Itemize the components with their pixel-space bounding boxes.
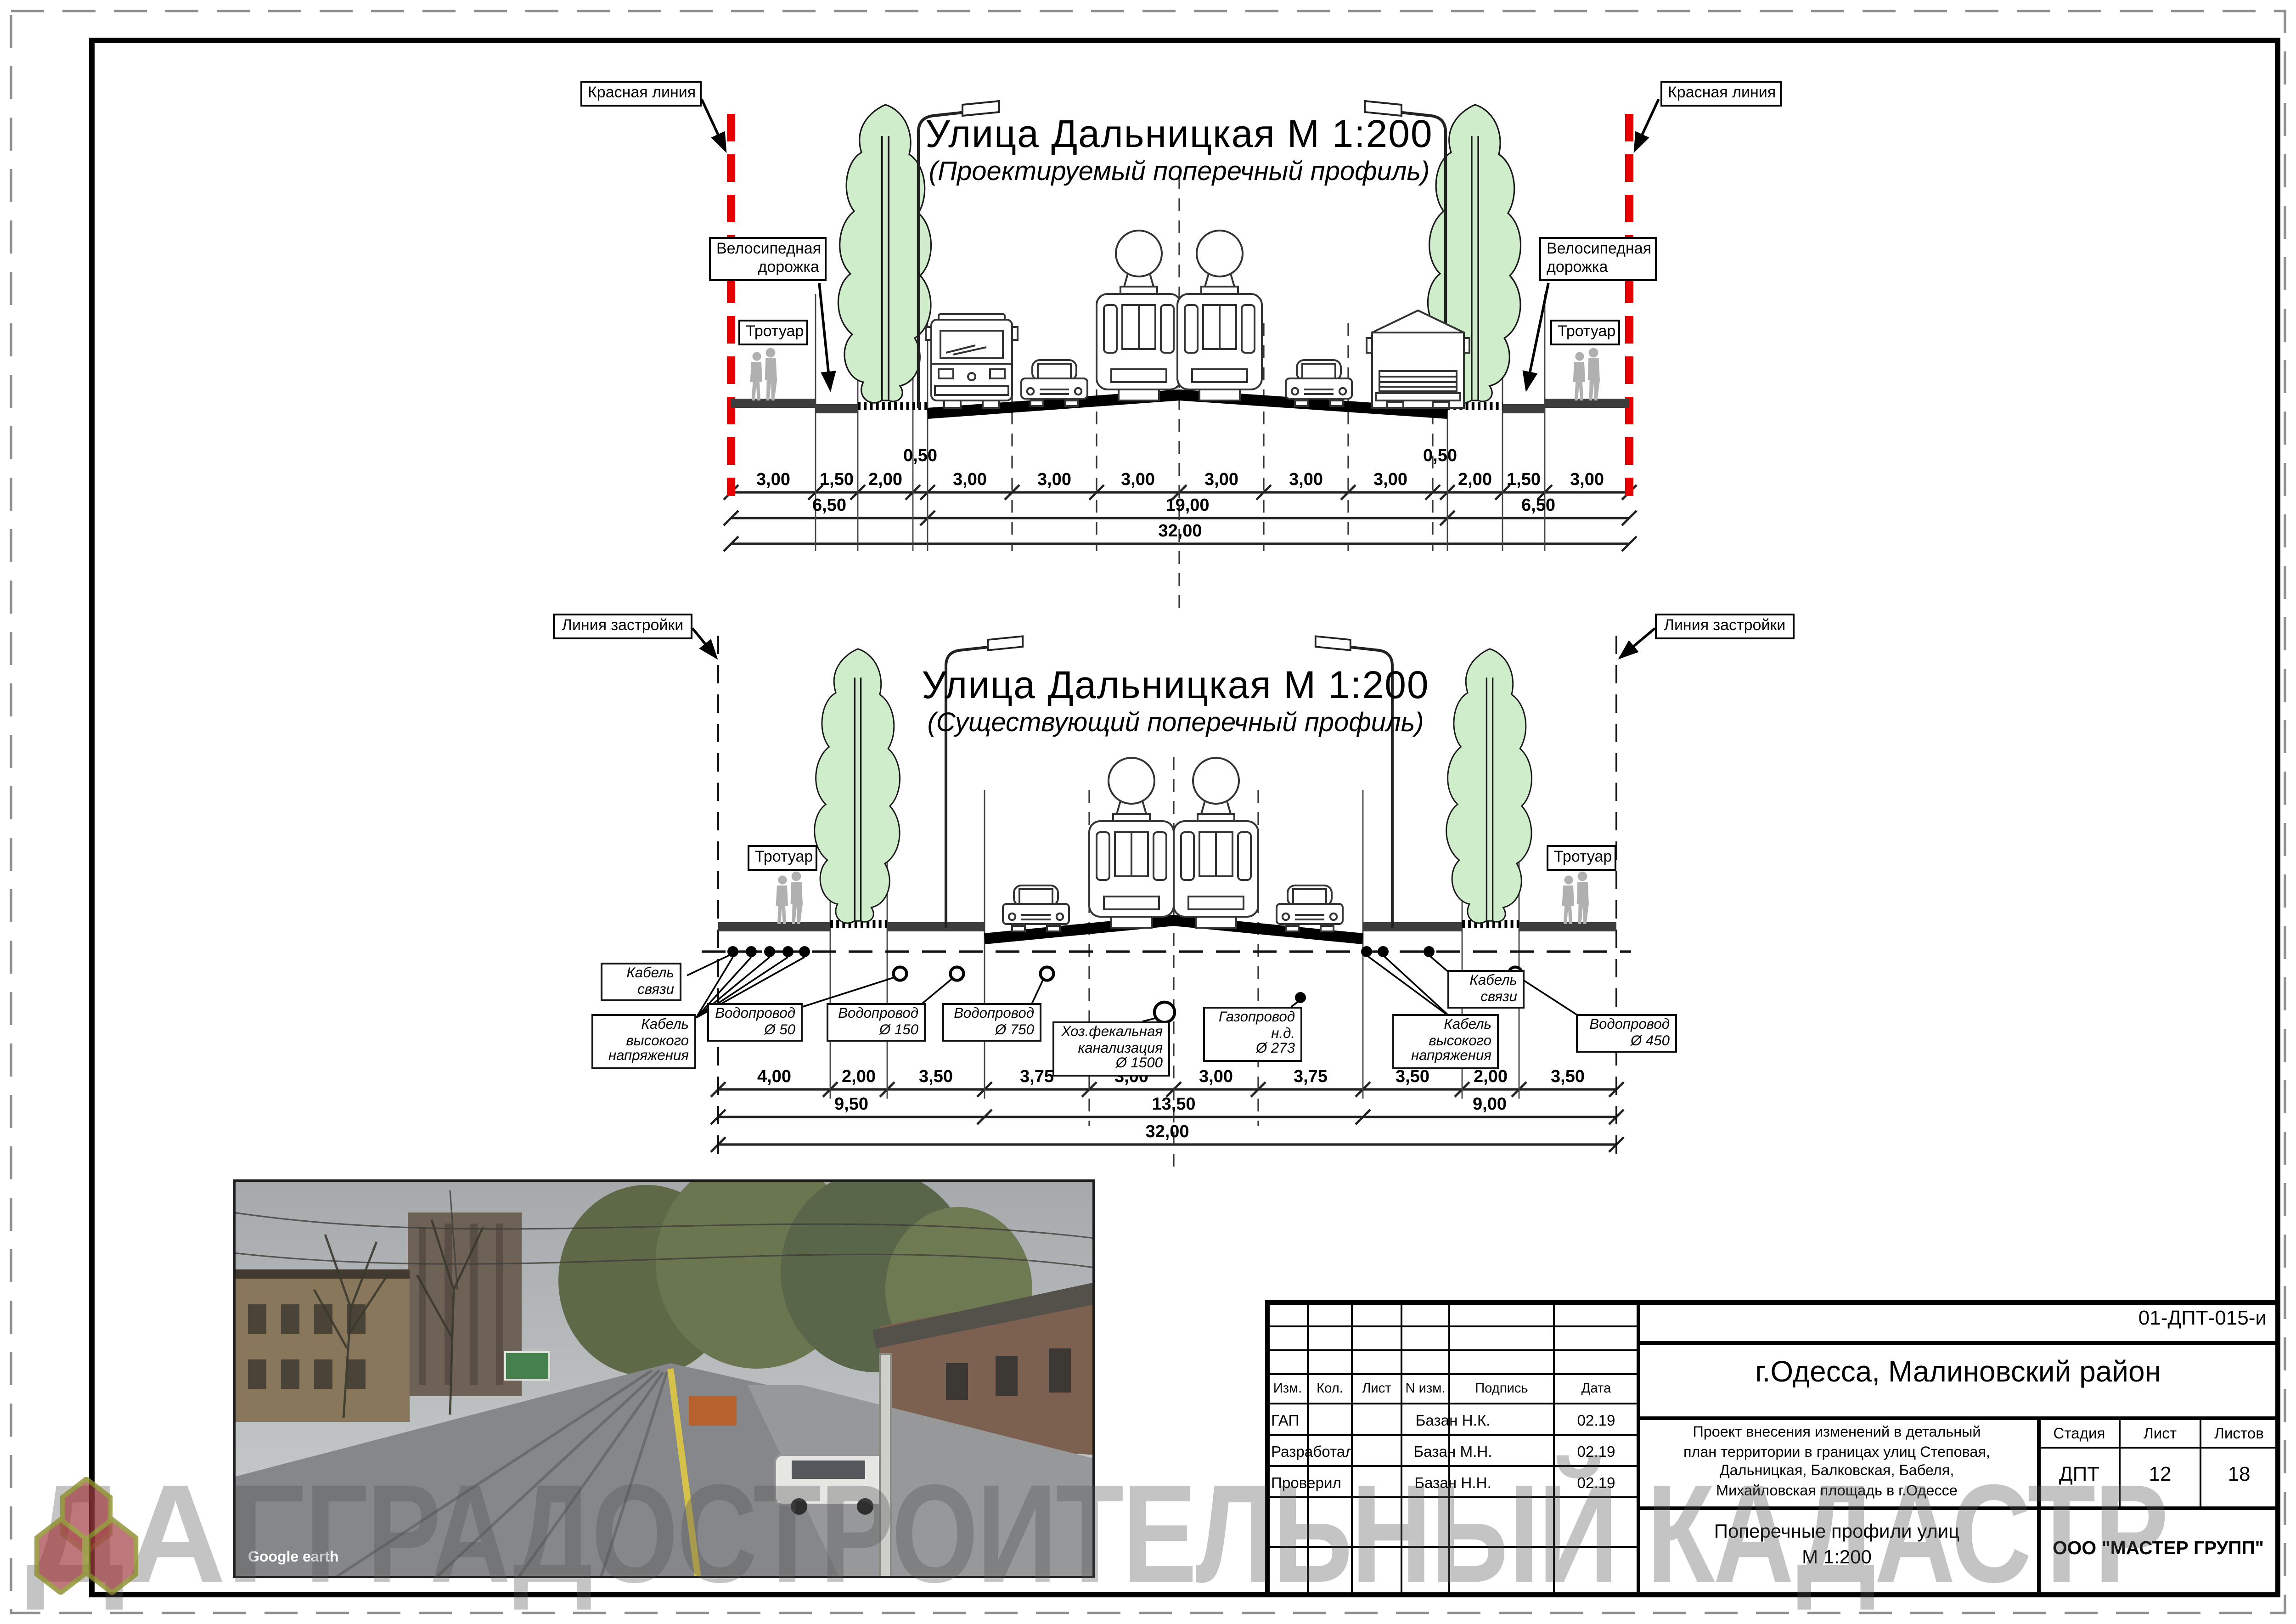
- document-code: 01-ДПТ-015-и: [1638, 1308, 2267, 1330]
- photo-left-building: [233, 1275, 410, 1422]
- dim-label: 3,00: [1570, 470, 1604, 491]
- bottom-profile-title: Улица Дальницкая М 1:200: [922, 665, 1429, 709]
- dim-label: 3,00: [1289, 470, 1323, 491]
- sheet-value: 12: [2120, 1464, 2200, 1486]
- top-profile-subtitle: (Проектируемый поперечный профиль): [929, 158, 1430, 187]
- dim-label: 3,50: [1551, 1067, 1585, 1088]
- col-data: Дата: [1554, 1380, 1638, 1396]
- company-name: ООО "МАСТЕР ГРУПП": [2039, 1539, 2278, 1560]
- sidewalk-label-bottom-left: Тротуар: [748, 845, 817, 870]
- dim-label: 3,00: [1121, 470, 1155, 491]
- dim-label: 3,75: [1294, 1067, 1328, 1088]
- building-line-label-left: Линия застройки: [553, 614, 692, 639]
- utility-label-water-450: ВодопроводØ 450: [1576, 1014, 1677, 1054]
- bike-path-label-line: Велосипедная: [1547, 239, 1651, 257]
- stage-label: Стадия: [2039, 1424, 2120, 1442]
- dim-label: 3,00: [756, 470, 790, 491]
- dim-label: 3,00: [1204, 470, 1238, 491]
- dim-label: 19,00: [1165, 496, 1209, 516]
- col-list: Лист: [1352, 1380, 1401, 1396]
- sig-date: 02.19: [1554, 1442, 1638, 1460]
- utility-label-sewer-1500: Хоз.фекальнаяканализацияØ 1500: [1052, 1021, 1170, 1077]
- sig-name: Базан М.Н.: [1352, 1442, 1554, 1460]
- dim-label: 6,50: [812, 496, 846, 516]
- dim-label: 3,50: [1396, 1067, 1429, 1088]
- dim-label: 32,00: [1158, 522, 1202, 542]
- dim-label: 2,00: [842, 1067, 876, 1088]
- utility-label-cable-hv-right: Кабельвысокогонапряжения: [1392, 1014, 1499, 1070]
- photo-orange-truck: [689, 1396, 737, 1426]
- stage-value: ДПТ: [2039, 1464, 2120, 1486]
- sig-name: Базан Н.К.: [1352, 1411, 1554, 1429]
- bike-path-label-left: Велосипедная дорожка: [709, 237, 827, 280]
- utility-label-cable-comm-left: Кабельсвязи: [601, 963, 681, 1002]
- dim-label: 1,50: [1507, 470, 1541, 491]
- dim-label: 3,50: [919, 1067, 953, 1088]
- bottom-profile-subtitle: (Существующий поперечный профиль): [927, 709, 1424, 739]
- project-description: Проект внесения изменений в детальный пл…: [1642, 1424, 2032, 1502]
- sheet-label: Лист: [2120, 1424, 2200, 1442]
- col-nizm: N изм.: [1401, 1380, 1449, 1396]
- dim-label: 6,50: [1521, 496, 1555, 516]
- top-profile-title: Улица Дальницкая М 1:200: [925, 114, 1433, 158]
- dim-label: 9,00: [1473, 1095, 1507, 1115]
- utility-label-cable-hv-left: Кабельвысокогонапряжения: [591, 1014, 696, 1070]
- drawing-sheet: Google earth Улица Дальницкая М 1:200 (П…: [0, 0, 2296, 1624]
- red-line-label-right: Красная линия: [1660, 81, 1782, 106]
- sig-date: 02.19: [1554, 1411, 1638, 1429]
- sheets-value: 18: [2200, 1464, 2278, 1486]
- photo-pole: [880, 1354, 891, 1578]
- utility-label-water-150: ВодопроводØ 150: [827, 1003, 926, 1043]
- sheet-title: Поперечные профили улиц М 1:200: [1642, 1521, 2032, 1571]
- utility-label-water-50: ВодопроводØ 50: [707, 1003, 803, 1043]
- dim-label: 3,75: [1020, 1067, 1054, 1088]
- dim-label: 3,00: [1373, 470, 1407, 491]
- bike-path-label-line: дорожка: [1547, 257, 1608, 275]
- photo-billboard: [505, 1352, 549, 1380]
- dim-label: 32,00: [1145, 1122, 1189, 1143]
- dim-label: 3,00: [1199, 1067, 1233, 1088]
- dim-label: 2,00: [1474, 1067, 1508, 1088]
- bike-path-label-line: дорожка: [758, 257, 820, 275]
- sidewalk-label-top-left: Тротуар: [738, 320, 808, 345]
- bike-path-label-right: Велосипедная дорожка: [1539, 237, 1657, 280]
- dim-label: 9,50: [834, 1095, 868, 1115]
- sidewalk-label-top-right: Тротуар: [1550, 320, 1620, 345]
- dim-label: 3,00: [1037, 470, 1071, 491]
- sig-date: 02.19: [1554, 1473, 1638, 1492]
- region-title: г.Одесса, Малиновский район: [1638, 1358, 2278, 1391]
- dim-label: 1,50: [820, 470, 854, 491]
- building-line-label-right: Линия застройки: [1655, 614, 1795, 639]
- col-podpis: Подпись: [1449, 1380, 1554, 1396]
- dim-label: 0,50: [903, 446, 937, 467]
- dim-label: 3,00: [953, 470, 987, 491]
- utility-label-gas-273: Газопроводн.д.Ø 273: [1203, 1007, 1302, 1062]
- photo-credit: Google earth: [248, 1548, 338, 1565]
- sig-name: Базан Н.Н.: [1352, 1473, 1554, 1492]
- col-izm: Изм.: [1267, 1380, 1308, 1396]
- utility-label-cable-comm-right: Кабельсвязи: [1447, 970, 1525, 1009]
- dim-label: 13,50: [1152, 1095, 1195, 1115]
- sidewalk-label-bottom-right: Тротуар: [1547, 845, 1616, 870]
- dim-label: 4,00: [757, 1067, 791, 1088]
- street-photo: Google earth: [233, 1156, 1095, 1578]
- utility-label-water-750: ВодопроводØ 750: [942, 1003, 1041, 1043]
- col-kol: Кол.: [1308, 1380, 1352, 1396]
- dim-label: 0,50: [1423, 446, 1457, 467]
- dim-label: 2,00: [868, 470, 902, 491]
- dim-label: 2,00: [1458, 470, 1492, 491]
- sheets-label: Листов: [2200, 1424, 2278, 1442]
- red-line-label-left: Красная линия: [580, 81, 702, 106]
- bike-path-label-line: Велосипедная: [716, 239, 821, 257]
